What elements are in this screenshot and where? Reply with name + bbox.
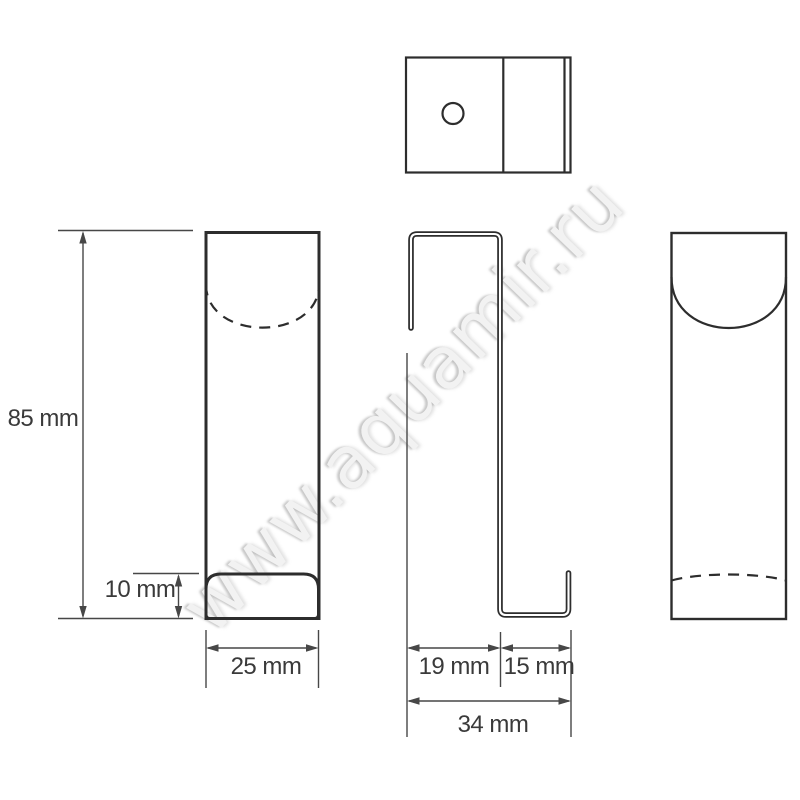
arrowhead-15mm-left (501, 644, 514, 651)
top-view-outline (406, 58, 571, 173)
dim-label-hook-gap: 19 mm (419, 655, 490, 679)
arrowhead-25mm-right (306, 644, 319, 651)
front-view-hidden-arc (206, 285, 319, 328)
hook-profile-outer (411, 234, 569, 615)
back-view (672, 233, 787, 619)
drawing-canvas (0, 0, 800, 800)
arrowhead-85mm-bottom (79, 606, 86, 619)
hook-technical-drawing: www.aquamir.ru (0, 0, 800, 800)
dim-label-lip-height: 10 mm (105, 578, 176, 602)
arrowhead-10mm-bottom (175, 606, 182, 619)
arrowhead-15mm-right (559, 644, 572, 651)
arrowhead-34mm-right (559, 697, 572, 704)
dim-label-total-depth: 34 mm (458, 713, 529, 737)
dim-label-hook-return: 15 mm (504, 655, 575, 679)
top-view (406, 58, 571, 173)
arrowhead-85mm-top (79, 231, 86, 244)
back-view-outline (672, 233, 787, 619)
top-view-hole (443, 103, 464, 124)
arrowhead-25mm-left (206, 644, 219, 651)
dim-label-height: 85 mm (8, 407, 79, 431)
front-view-outline (206, 233, 319, 619)
hook-profile-inner (411, 234, 569, 615)
front-view (206, 233, 319, 619)
front-view-bottom-lip (206, 574, 319, 619)
dimension-linework (58, 231, 571, 738)
arrowhead-10mm-top (175, 574, 182, 587)
back-view-arc (672, 277, 787, 328)
arrowhead-34mm-left (407, 697, 420, 704)
side-view (411, 234, 569, 615)
arrowhead-19mm-left (407, 644, 420, 651)
arrowhead-19mm-right (488, 644, 501, 651)
dim-label-width: 25 mm (231, 655, 302, 679)
back-view-hidden-lip-line (672, 575, 787, 581)
